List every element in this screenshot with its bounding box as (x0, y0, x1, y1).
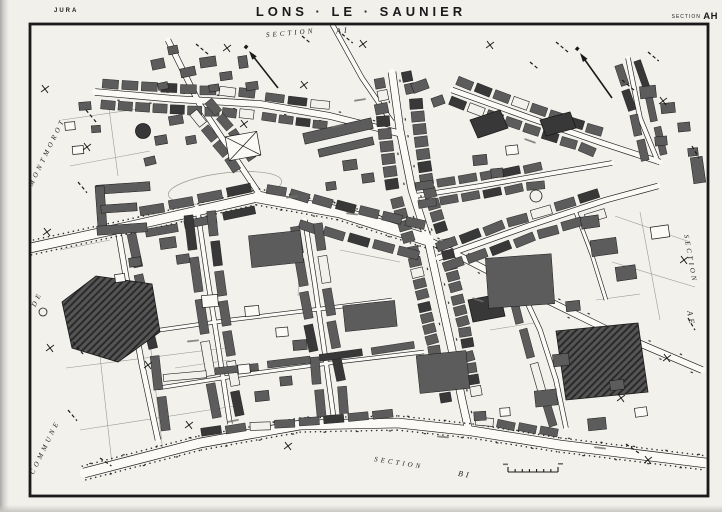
building (416, 148, 430, 160)
building (248, 230, 303, 267)
scan-edge-left (0, 0, 9, 512)
building (323, 414, 344, 424)
cadastral-map-sheet: JURA LONS · LE · SAUNIER SECTION AH SECT… (0, 0, 722, 512)
sheet-section-label: SECTION AH (672, 11, 718, 22)
adjacent-section-top-id: AI (336, 25, 350, 35)
building (135, 102, 150, 112)
building (342, 159, 357, 171)
building (587, 417, 606, 431)
building (274, 419, 295, 428)
building (639, 85, 656, 99)
building-outline (276, 327, 289, 337)
building (439, 392, 451, 403)
building (566, 300, 581, 311)
building (159, 236, 176, 249)
building (299, 417, 320, 426)
building (377, 89, 389, 101)
building (376, 116, 390, 127)
building (102, 79, 119, 89)
map-canvas (0, 0, 722, 512)
building (343, 300, 397, 331)
building (381, 153, 395, 165)
building (176, 254, 190, 265)
building (661, 102, 676, 113)
building (255, 390, 270, 401)
building-outline (650, 225, 669, 239)
building (615, 265, 637, 282)
building (185, 135, 196, 145)
round-building (136, 124, 151, 139)
building (310, 100, 329, 110)
building (414, 136, 428, 148)
building (678, 122, 691, 132)
building (383, 165, 397, 177)
building (209, 84, 220, 92)
building (474, 411, 487, 421)
building (79, 101, 92, 110)
building (552, 353, 569, 367)
building (655, 136, 668, 146)
building (470, 385, 483, 396)
building-outline (238, 364, 251, 374)
building-outline (634, 407, 647, 418)
building (238, 55, 249, 68)
building-outline (72, 146, 84, 155)
building (246, 81, 259, 91)
parcel-number-mark (323, 432, 325, 433)
building (401, 71, 413, 83)
building (411, 111, 425, 123)
building (385, 178, 399, 190)
building (313, 120, 328, 129)
adjacent-section-bottom-id: BI (457, 469, 472, 480)
building (374, 78, 386, 90)
building (378, 128, 392, 140)
building (141, 82, 157, 92)
building (100, 100, 115, 110)
building (154, 135, 167, 146)
building (280, 376, 293, 386)
building (418, 161, 432, 173)
building (348, 412, 369, 422)
map-content (28, 24, 708, 496)
building (122, 80, 139, 90)
building (180, 85, 196, 94)
building (170, 105, 185, 114)
building (219, 86, 236, 97)
building (167, 45, 178, 55)
building (491, 168, 504, 178)
building (118, 101, 133, 111)
department-label: JURA (54, 8, 78, 14)
building (609, 379, 624, 391)
building (199, 56, 216, 68)
parcel-number-mark (117, 100, 119, 101)
sheet-section-word: SECTION (672, 14, 701, 20)
sheet-section-id: AH (703, 11, 718, 22)
scan-edge-bottom (0, 505, 722, 512)
building (380, 141, 394, 153)
building (293, 339, 308, 350)
parcel-number-mark (389, 430, 391, 431)
building (485, 254, 554, 308)
building (590, 237, 618, 256)
building (526, 181, 545, 191)
building (361, 173, 374, 184)
building-outline (245, 305, 260, 316)
building (91, 125, 101, 133)
building (461, 337, 474, 348)
building (409, 98, 423, 109)
building-outline (202, 294, 219, 307)
parcel-number-mark (356, 431, 358, 432)
building-outline (65, 122, 76, 131)
building (310, 357, 321, 385)
building-outline (500, 408, 511, 417)
building (473, 154, 488, 165)
building (153, 104, 168, 114)
hatched-building-block (556, 323, 648, 400)
building (250, 422, 270, 431)
building (279, 115, 294, 125)
building (239, 109, 254, 120)
building (338, 386, 349, 414)
building (325, 181, 336, 190)
building (580, 215, 599, 229)
building-outline (114, 273, 125, 282)
building (220, 71, 233, 81)
building-outline (506, 145, 519, 155)
building (296, 117, 311, 127)
building (128, 257, 141, 268)
building (413, 123, 427, 135)
building (458, 327, 471, 338)
building (416, 350, 470, 393)
map-title: LONS · LE · SAUNIER (256, 4, 466, 19)
building (534, 389, 558, 407)
